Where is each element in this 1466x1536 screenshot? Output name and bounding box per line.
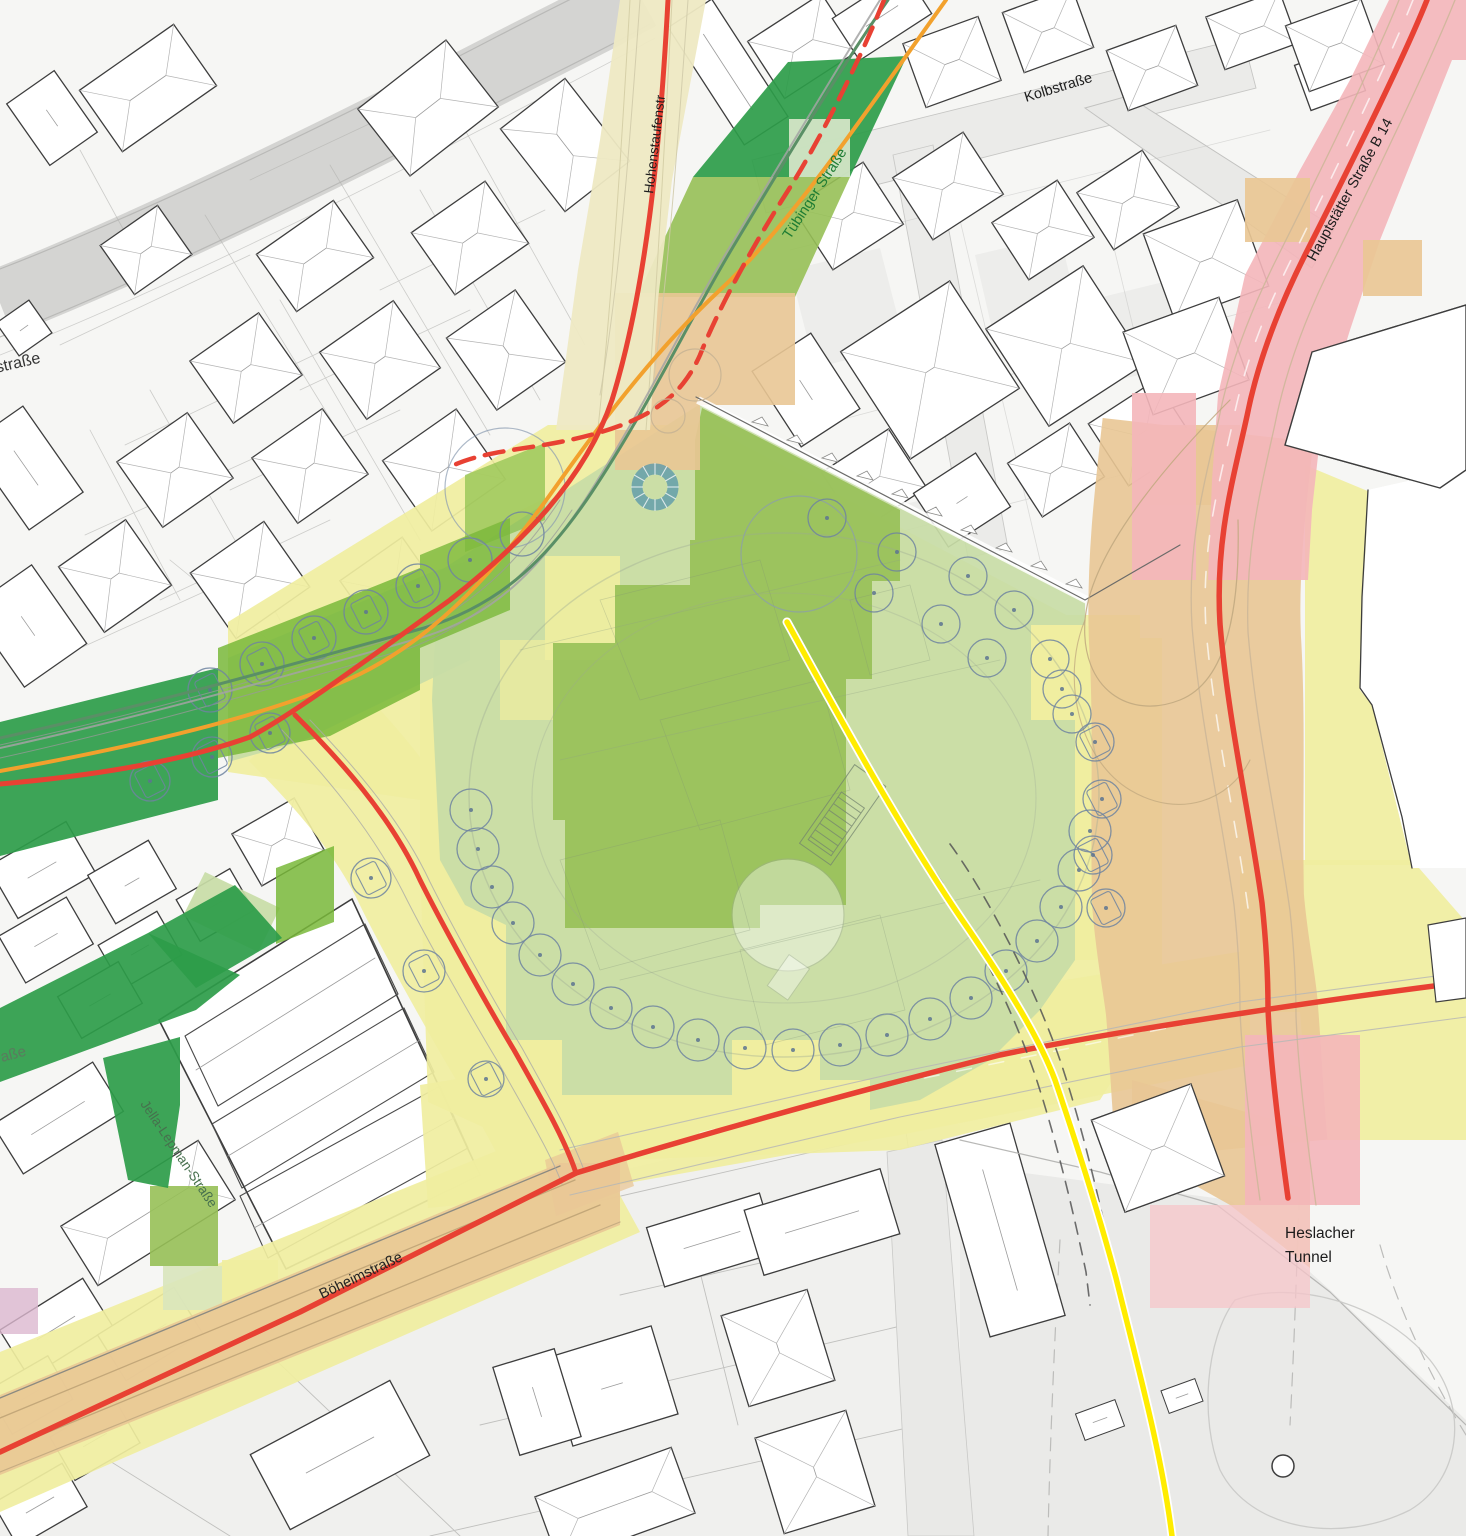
- svg-text:Tunnel: Tunnel: [1285, 1249, 1332, 1266]
- svg-text:Heslacher: Heslacher: [1285, 1225, 1355, 1242]
